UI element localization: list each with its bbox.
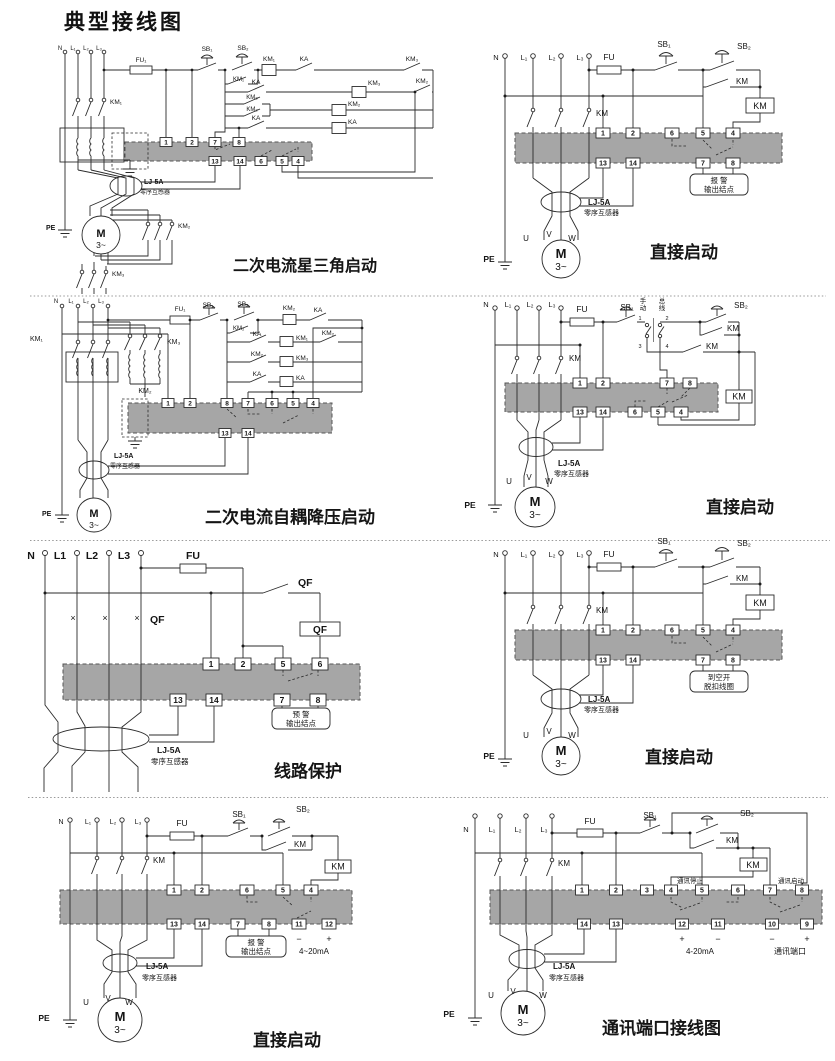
diagram-label: V — [526, 473, 532, 482]
diagram-label: SB₂ — [740, 809, 754, 818]
diagram-label: KA — [253, 371, 262, 378]
diagram-label: 零序互感器 — [142, 973, 177, 982]
terminal-number: 1 — [166, 400, 170, 407]
diagram-label: KM — [732, 392, 746, 402]
diagram-label: N — [493, 550, 498, 559]
diagram-label: KM — [558, 859, 570, 868]
fuse-symbol — [180, 564, 206, 573]
diagram-label: 零序互感器 — [584, 208, 619, 217]
page-title: 典型接线图 — [64, 6, 184, 36]
diagram-label: FU — [176, 818, 187, 828]
diagram-label: L₃ — [540, 825, 547, 834]
diagram-label: FU — [186, 550, 200, 562]
diagram-label: KM — [726, 836, 738, 845]
terminal-number: 8 — [731, 161, 735, 168]
diagram-label: PE — [443, 1009, 455, 1019]
diagram-label: KM₂ — [246, 107, 258, 113]
diagram-label: L₁ — [68, 299, 73, 305]
terminal-number: 13 — [612, 922, 620, 929]
terminal-number: 13 — [221, 430, 229, 437]
diagram-label: L₂ — [548, 53, 555, 62]
diagram-label: KM — [727, 324, 739, 333]
diagram-label: U — [523, 731, 529, 740]
diagram-label: KM — [331, 862, 345, 872]
diagram-label: L₁ — [521, 550, 528, 559]
diagram-label: KM — [736, 77, 748, 86]
terminal-number: 4 — [296, 158, 300, 165]
diagram-label: 报 警 — [710, 175, 728, 185]
diagram-label: N — [54, 299, 58, 305]
terminal-number: 9 — [805, 922, 809, 929]
diagram-label: KM — [746, 860, 760, 870]
diagram-label: + — [679, 934, 684, 944]
diagram-label: M — [530, 494, 541, 509]
terminal-number: 8 — [688, 381, 692, 388]
terminal-number: 6 — [270, 400, 274, 407]
terminal-number: 6 — [670, 131, 674, 138]
diagram-label: FU — [584, 816, 595, 826]
diagram-label: N — [483, 300, 488, 309]
diagram-label: 2 — [665, 316, 668, 322]
diagram-label: KM₂ — [348, 101, 361, 108]
terminal-number: 5 — [700, 888, 704, 895]
diagram-label: 3~ — [555, 759, 567, 770]
diagram-label: L1 — [54, 550, 66, 562]
diagram-label: N — [58, 46, 62, 52]
diagram-label: M — [115, 1009, 126, 1024]
terminal-number: 7 — [280, 695, 285, 705]
terminal-number: 7 — [236, 922, 240, 929]
diagram-label: LJ-5A — [157, 745, 181, 755]
diagram-label: LJ-5A — [588, 695, 610, 704]
diagram-label: − — [296, 934, 301, 944]
terminal-number: 6 — [259, 158, 263, 165]
diagram-label: SB₁ — [202, 46, 214, 53]
diagram-label: FU — [603, 549, 614, 559]
diagram-label: 总 — [659, 296, 666, 305]
diagram-label: W — [545, 477, 553, 486]
diagram-label: KM — [753, 598, 767, 608]
diagram-label: U — [523, 234, 529, 243]
diagram-label: U — [83, 998, 89, 1007]
diagram-label: KM₂ — [138, 388, 152, 395]
diagram-label: M — [96, 228, 105, 240]
terminal-number: 13 — [576, 410, 584, 417]
diagram-label: QF — [150, 614, 165, 626]
diagram-label: QF — [313, 625, 327, 636]
diagram-label: KM₃ — [368, 80, 381, 87]
diagram-label: SB₁ — [643, 811, 657, 820]
diagram-label: U — [488, 991, 494, 1000]
diagram-label: KM₃ — [406, 56, 419, 63]
diagram-d1-text: 12781314654NL₁L₂L₃FU₁SB₁SB₂KM₁KM₁KAKM₃KA… — [46, 45, 429, 278]
terminal-number: 4 — [679, 410, 683, 417]
diagram-label: 输出结点 — [241, 946, 271, 956]
caption-star-delta: 二次电流星三角启动 — [233, 252, 377, 276]
diagram-label: 4~20mA — [299, 947, 330, 956]
diagram-label: L₁ — [521, 53, 528, 62]
diagram-label: M — [556, 246, 567, 261]
diagram-label: KM₃ — [112, 271, 125, 278]
diagram-label: PE — [46, 225, 56, 232]
diagram-label: KA — [252, 79, 261, 86]
terminal-number: 5 — [280, 158, 284, 165]
diagram-label: M — [518, 1002, 529, 1017]
diagram-label: 零序互感器 — [584, 705, 619, 714]
terminal-number: 2 — [601, 381, 605, 388]
terminal-number: 14 — [244, 430, 252, 437]
terminal-number: 6 — [670, 628, 674, 635]
diagram-label: 动 — [640, 304, 647, 312]
diagram-label: 4-20mA — [686, 947, 715, 956]
diagram-label: + — [326, 934, 331, 944]
diagram-label: L₃ — [576, 53, 583, 62]
terminal-number: 1 — [601, 628, 605, 635]
diagram-label: L₃ — [548, 300, 555, 309]
diagram-label: SB₂ — [734, 301, 748, 310]
diagram-label: PE — [483, 751, 495, 761]
diagram-label: PE — [464, 500, 476, 510]
diagram-label: LJ-5A — [114, 453, 133, 460]
diagram-label: LJ-5A — [588, 198, 610, 207]
terminal-number: 3 — [645, 888, 649, 895]
diagram-label: 通讯停止 — [677, 876, 704, 885]
diagram-label: QF — [298, 577, 313, 589]
diagram-label: 3 — [638, 344, 641, 350]
diagram-label: + — [804, 934, 809, 944]
diagram-label: 报 警 — [247, 937, 265, 947]
diagram-label: KA — [300, 56, 309, 63]
diagram-label: L₃ — [96, 46, 102, 52]
terminal-number: 14 — [629, 658, 637, 665]
diagram-label: × — [102, 613, 107, 623]
terminal-number: 12 — [678, 922, 686, 929]
terminal-number: 13 — [599, 658, 607, 665]
terminal-number: 14 — [209, 695, 219, 705]
diagram-label: N — [58, 819, 63, 826]
diagram-label: L₁ — [85, 819, 92, 826]
diagram-label: KM₂ — [178, 223, 191, 230]
caption-direct-start-4: 直接启动 — [253, 1026, 321, 1051]
diagram-label: N — [463, 825, 468, 834]
diagram-label: W — [568, 234, 576, 243]
diagram-label: KM — [706, 342, 718, 351]
diagram-label: 预 警 — [292, 709, 310, 719]
diagram-label: 零序互感器 — [151, 756, 189, 766]
diagram-label: W — [125, 998, 133, 1007]
diagram-label: 3~ — [114, 1025, 126, 1036]
terminal-number: 4 — [731, 131, 735, 138]
diagram-label: KM — [153, 856, 165, 865]
terminal-number: 14 — [599, 410, 607, 417]
diagram-label: PE — [42, 511, 52, 518]
diagram-label: SB₂ — [296, 805, 310, 814]
diagram-label: 3~ — [96, 240, 106, 250]
diagram-label: KM₂ — [283, 305, 296, 312]
terminal-number: 14 — [580, 922, 588, 929]
diagram-label: L₂ — [514, 825, 521, 834]
terminal-number: 5 — [656, 410, 660, 417]
caption-autotransformer: 二次电流自耦降压启动 — [205, 503, 375, 528]
terminal-number: 7 — [213, 139, 217, 146]
diagram-label: KM₁ — [263, 56, 276, 63]
diagram-label: SB₂ — [737, 539, 751, 548]
diagram-label: L₂ — [83, 299, 89, 305]
diagram-label: 4 — [665, 344, 668, 350]
terminal-number: 5 — [701, 131, 705, 138]
ct-toroid — [53, 727, 149, 751]
diagram-label: V — [546, 727, 552, 736]
terminal-number: 13 — [170, 922, 178, 929]
diagram-label: 1 — [638, 316, 641, 322]
diagram-label: W — [568, 731, 576, 740]
terminal-number: 1 — [578, 381, 582, 388]
diagram-label: M — [89, 508, 98, 520]
diagram-label: SB₁ — [620, 303, 634, 312]
terminal-number: 14 — [629, 161, 637, 168]
diagram-label: LJ-5A — [553, 962, 575, 971]
terminal-number: 2 — [614, 888, 618, 895]
diagram-label: KA — [252, 115, 261, 122]
caption-comm-port: 通讯端口接线图 — [602, 1014, 721, 1039]
diagram-label: KM₂ — [233, 326, 245, 332]
diagram-label: KM₁ — [30, 336, 44, 343]
diagram-label: PE — [38, 1013, 50, 1023]
terminal-number: 12 — [325, 922, 333, 929]
diagram-label: LJ-5A — [146, 962, 168, 971]
ct-toroid — [79, 461, 109, 479]
diagram-label: FU₁ — [175, 306, 187, 313]
diagram-label: × — [70, 613, 75, 623]
terminal-number: 14 — [198, 922, 206, 929]
diagram-d3-autotransformer — [55, 304, 363, 532]
diagram-label: 零序互感器 — [554, 469, 589, 478]
terminal-number: 7 — [246, 400, 250, 407]
diagram-label: KM₃ — [246, 95, 258, 101]
diagram-label: FU — [603, 52, 614, 62]
diagram-label: L2 — [86, 550, 98, 562]
terminal-number: 11 — [295, 922, 303, 929]
terminal-number: 7 — [768, 888, 772, 895]
terminal-number: 8 — [316, 695, 321, 705]
diagram-label: 输出结点 — [286, 718, 316, 728]
diagram-label: SB₁ — [657, 40, 671, 49]
diagram-label: L₃ — [576, 550, 583, 559]
diagram-label: KA — [253, 331, 262, 338]
diagram-label: KM₃ — [296, 355, 309, 362]
terminal-number: 1 — [209, 659, 214, 669]
diagram-label: 脱扣线圈 — [704, 681, 734, 691]
diagram-label: L₂ — [548, 550, 555, 559]
terminal-number: 2 — [241, 659, 246, 669]
terminal-number: 8 — [731, 658, 735, 665]
terminal-number: 11 — [714, 922, 722, 929]
terminal-number: 14 — [236, 158, 244, 165]
diagram-label: FU — [576, 304, 587, 314]
diagram-label: 通讯启动 — [778, 876, 805, 885]
terminal-number: 8 — [267, 922, 271, 929]
diagram-label: 零序互感器 — [110, 462, 140, 470]
terminal-number: 6 — [318, 659, 323, 669]
diagram-label: 手 — [640, 296, 647, 305]
diagram-label: V — [546, 230, 552, 239]
caption-line-protection: 线路保护 — [274, 757, 342, 782]
terminal-number: 6 — [736, 888, 740, 895]
terminal-number: 4 — [311, 400, 315, 407]
diagram-label: KM — [294, 840, 306, 849]
row-separator — [28, 296, 830, 798]
diagram-label: PE — [483, 254, 495, 264]
terminal-number: 1 — [164, 139, 168, 146]
terminal-number: 1 — [580, 888, 584, 895]
terminal-number: 2 — [188, 400, 192, 407]
terminal-number: 2 — [631, 131, 635, 138]
diagram-label: KM₁ — [233, 77, 244, 83]
terminal-number: 8 — [225, 400, 229, 407]
fuse-symbol — [170, 316, 190, 324]
diagram-label: W — [539, 991, 547, 1000]
terminal-number: 1 — [172, 888, 176, 895]
terminal-number: 5 — [281, 888, 285, 895]
fuse-symbol — [577, 829, 603, 837]
diagram-label: 输出结点 — [704, 184, 734, 194]
diagram-label: L₂ — [526, 300, 533, 309]
diagram-label: 3~ — [555, 262, 567, 273]
diagram-d7-direct-start-analog — [60, 818, 352, 1042]
wiring-art: 12781314654NL₁L₂L₃FU₁SB₁SB₂KM₁KM₁KAKM₃KA… — [0, 0, 835, 1061]
diagram-label: KA — [314, 307, 323, 314]
diagram-label: KA — [348, 119, 357, 126]
diagram-label: N — [493, 53, 498, 62]
diagram-label: V — [105, 994, 111, 1003]
diagram-label: L₁ — [489, 825, 496, 834]
diagram-label: − — [715, 934, 720, 944]
diagram-label: 线 — [659, 303, 666, 312]
fuse-symbol — [570, 318, 594, 326]
diagram-label: 到空开 — [708, 672, 731, 682]
diagram-label: U — [506, 477, 512, 486]
diagram-label: SB₂ — [237, 301, 249, 308]
diagram-label: KM — [596, 606, 608, 615]
diagram-label: FU₁ — [136, 57, 148, 64]
diagram-label: L₃ — [98, 299, 104, 305]
diagram-label: KM₁ — [296, 335, 309, 342]
diagram-label: L₂ — [110, 819, 117, 826]
diagram-label: KM — [596, 109, 608, 118]
terminal-number: 1 — [601, 131, 605, 138]
diagram-label: L₁ — [505, 300, 512, 309]
caption-direct-start-1: 直接启动 — [650, 238, 718, 263]
terminal-number: 2 — [631, 628, 635, 635]
diagram-label: 通讯端口 — [774, 946, 806, 956]
terminal-number: 8 — [237, 139, 241, 146]
diagram-label: SB₂ — [737, 42, 751, 51]
diagram-label: 3~ — [529, 510, 541, 521]
diagram-label: KM₂ — [251, 351, 264, 358]
diagram-label: KM₂ — [322, 330, 335, 337]
terminal-number: 6 — [245, 888, 249, 895]
terminal-number: 4 — [309, 888, 313, 895]
diagram-label: KM — [569, 354, 581, 363]
diagram-label: KM — [736, 574, 748, 583]
caption-direct-start-3: 直接启动 — [645, 743, 713, 768]
diagram-label: LJ-5A — [144, 179, 163, 186]
diagram-label: KM₂ — [416, 78, 429, 85]
terminal-number: 8 — [800, 888, 804, 895]
terminal-number: 7 — [701, 658, 705, 665]
terminal-number: 6 — [633, 410, 637, 417]
diagram-label: SB₂ — [237, 45, 249, 52]
diagram-label: 零序互感器 — [549, 973, 584, 982]
diagram-label: SB₁ — [657, 537, 671, 546]
diagram-label: 零序互感器 — [140, 188, 170, 196]
diagram-label: LJ-5A — [558, 459, 580, 468]
diagram-label: L₂ — [83, 46, 89, 52]
diagram-label: KM — [753, 101, 767, 111]
diagram-label: L₁ — [70, 46, 75, 52]
terminal-number: 4 — [669, 888, 673, 895]
terminal-number: 13 — [211, 158, 219, 165]
diagram-label: 3~ — [517, 1018, 529, 1029]
terminal-number: 7 — [665, 381, 669, 388]
diagram-label: V — [510, 987, 516, 996]
diagram-label: KM₁ — [110, 99, 123, 106]
fuse-symbol — [130, 66, 152, 74]
terminal-number: 10 — [768, 922, 776, 929]
terminal-number: 5 — [701, 628, 705, 635]
diagram-label: M — [556, 743, 567, 758]
terminal-number: 5 — [281, 659, 286, 669]
diagram-label: 3~ — [89, 520, 99, 530]
diagram-label: N — [27, 550, 35, 562]
diagram-label: SB₁ — [232, 810, 246, 819]
diagram-label: KM₃ — [167, 339, 181, 346]
terminal-number: 2 — [200, 888, 204, 895]
manual-page: 12781314654NL₁L₂L₃FU₁SB₁SB₂KM₁KM₁KAKM₃KA… — [0, 0, 835, 1061]
caption-direct-start-2: 直接启动 — [706, 493, 774, 518]
terminal-number: 5 — [291, 400, 295, 407]
terminal-number: 2 — [190, 139, 194, 146]
diagram-label: − — [769, 934, 774, 944]
diagram-label: × — [134, 613, 139, 623]
terminal-number: 7 — [701, 161, 705, 168]
fuse-symbol — [170, 832, 194, 840]
diagram-label: SB₁ — [203, 302, 215, 309]
terminal-number: 13 — [599, 161, 607, 168]
diagram-label: L3 — [118, 550, 130, 562]
terminal-number: 13 — [173, 695, 183, 705]
terminal-number: 4 — [731, 628, 735, 635]
diagram-label: L₃ — [135, 819, 142, 826]
diagram-label: KA — [296, 375, 305, 382]
